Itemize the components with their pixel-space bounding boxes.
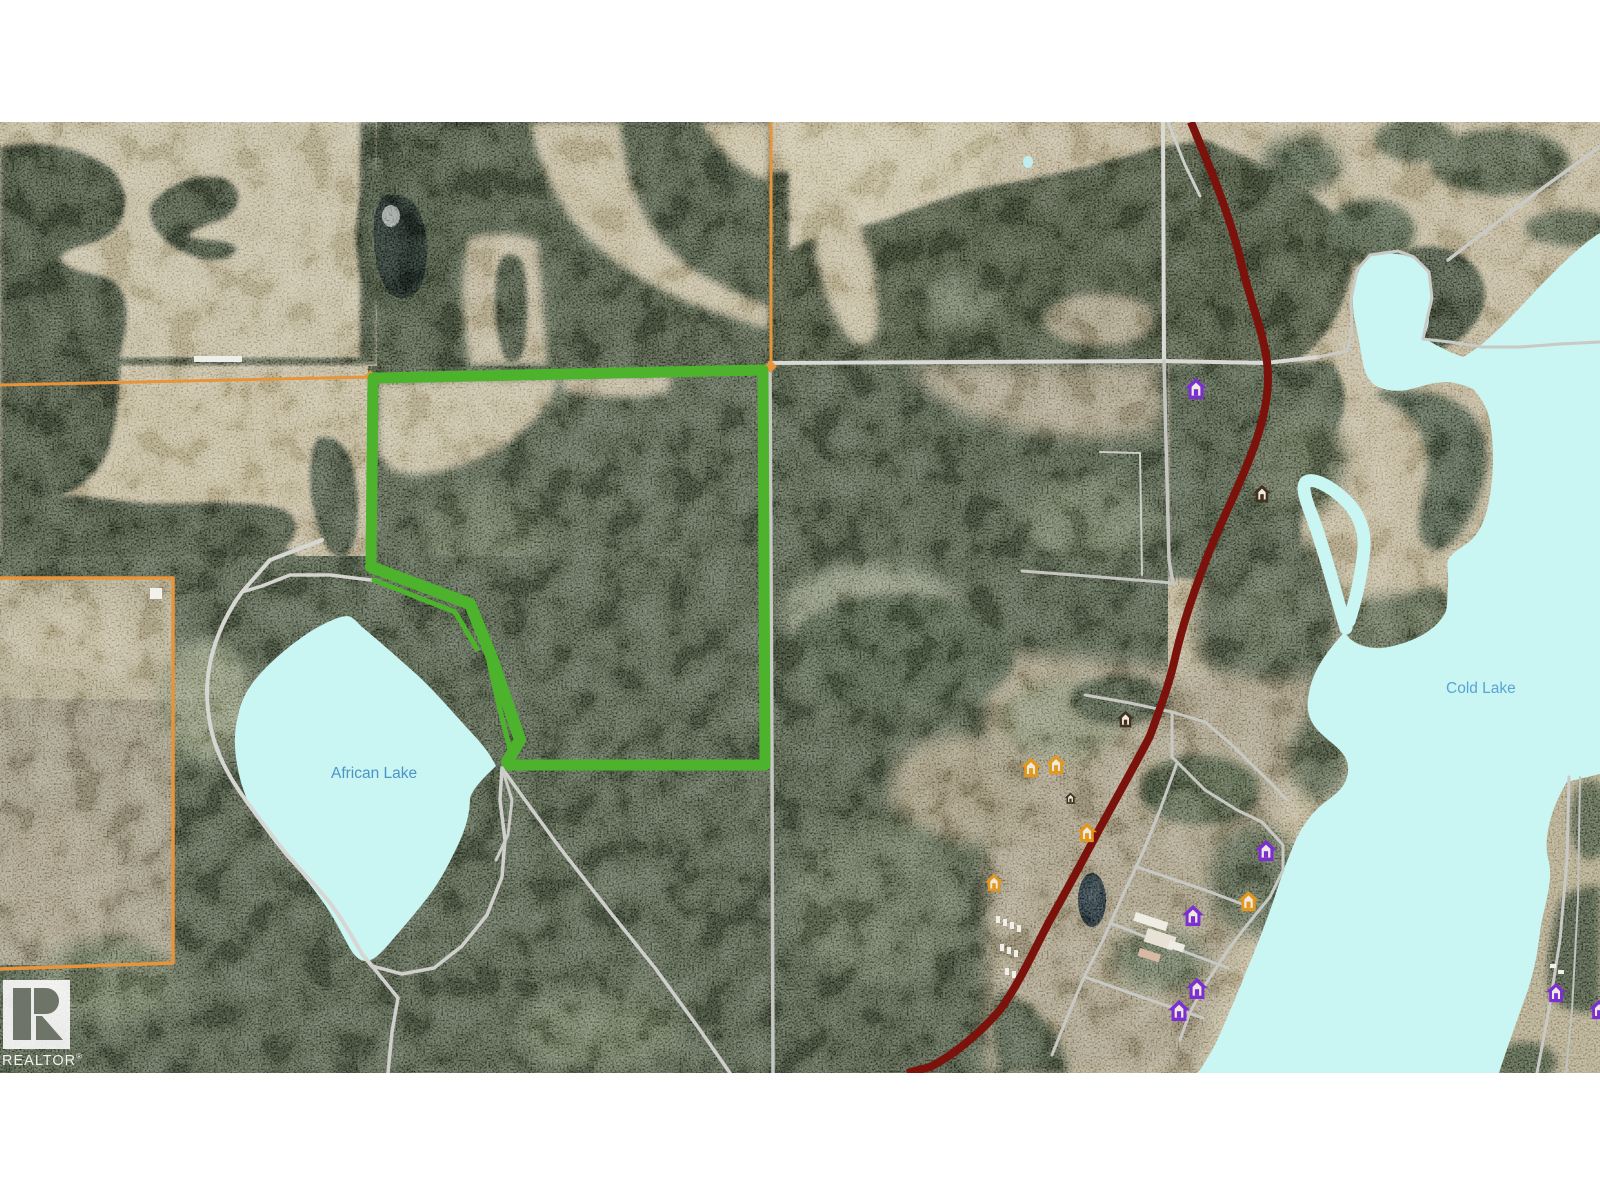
svg-text:Cold Lake: Cold Lake xyxy=(1446,680,1516,697)
svg-text:African Lake: African Lake xyxy=(331,765,417,782)
svg-text:REALTOR®: REALTOR® xyxy=(2,1052,83,1069)
